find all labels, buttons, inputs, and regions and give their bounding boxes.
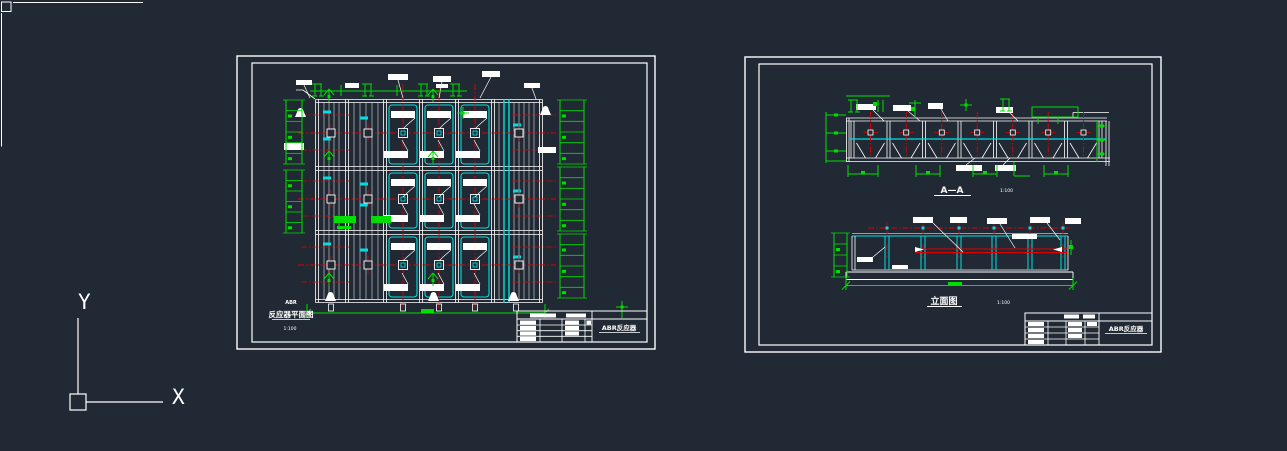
cad-line: [873, 247, 885, 257]
cad-rect: [2, 2, 12, 12]
plan-caption-title: 反应器平面图: [269, 309, 314, 319]
cad-label-block: [965, 104, 968, 107]
cad-label-block: [834, 150, 838, 153]
cad-label-block: [834, 114, 838, 117]
cad-label-block: [520, 321, 536, 325]
cad-label-block: [913, 217, 933, 223]
cad-rect: [1032, 107, 1078, 117]
cad-label-block: [462, 112, 465, 115]
cad-label-block: [1030, 217, 1050, 223]
cad-label-block: [328, 95, 331, 98]
cad-label-block: [911, 107, 915, 111]
cad-label-block: [565, 332, 579, 336]
cad-label-block: [995, 165, 1016, 171]
cad-label-block: [427, 243, 451, 250]
cad-rect: [327, 195, 335, 203]
ucs-x-axis-label: X: [172, 385, 185, 409]
crosshair-cursor: [2, 2, 144, 147]
cad-label-block: [928, 103, 943, 109]
leader-arrow: [1053, 247, 1062, 252]
cad-label-block: [323, 243, 331, 246]
cad-label-block: [1065, 218, 1081, 224]
cad-label-block: [834, 132, 838, 135]
cad-label-block: [345, 83, 359, 88]
cad-polyline: [403, 186, 415, 197]
cad-label-block: [433, 76, 451, 82]
cad-rect: [868, 130, 873, 135]
sheet-right-sections-drawing[interactable]: A—A 1:100 立面图 1:100 ABR反应器: [745, 57, 1161, 352]
cad-line: [1053, 143, 1062, 158]
cad-line: [433, 273, 438, 279]
cad-rect: [975, 130, 980, 135]
cad-polyline: [475, 186, 487, 197]
cad-line: [532, 88, 536, 99]
cad-line: [324, 89, 329, 95]
cad-label-block: [562, 270, 566, 273]
cad-label-block: [288, 115, 292, 118]
cad-label-block: [562, 115, 566, 118]
ucs-y-axis-label: Y: [78, 290, 91, 314]
cad-polyline: [475, 118, 487, 129]
cad-line: [329, 151, 334, 157]
elevation-view-caption: 立面图 1:100: [927, 295, 1010, 307]
cad-line: [428, 89, 433, 95]
cad-label-block: [857, 257, 873, 262]
cad-label-block: [323, 177, 331, 180]
cad-rect: [1081, 130, 1086, 135]
plan-caption-abr: ABR: [285, 300, 297, 306]
cad-line: [398, 80, 403, 98]
cad-label-block: [524, 83, 540, 88]
cad-line: [1088, 143, 1097, 158]
cad-label-block: [950, 217, 967, 223]
cad-label-block: [538, 147, 556, 153]
cad-label-block: [1068, 328, 1082, 332]
cad-label-block: [384, 151, 408, 158]
cad-label-block: [983, 171, 987, 174]
cad-label-block: [565, 321, 579, 325]
cad-rect: [435, 261, 444, 270]
cad-label-block: [562, 224, 566, 227]
cad-label-block: [566, 314, 586, 318]
cad-model-space[interactable]: Y X ABR 反应器平面图 1:100 ABR反应器 A—A: [0, 0, 1287, 451]
cad-label-block: [384, 284, 408, 291]
cad-label-block: [288, 226, 292, 229]
cad-label-block: [420, 284, 444, 291]
cad-label-block: [427, 111, 451, 118]
ucs-icon: Y X: [70, 290, 185, 410]
cad-rect: [399, 261, 408, 270]
cad-rect: [471, 129, 480, 138]
cad-label-block: [420, 215, 444, 222]
cad-rect: [471, 261, 480, 270]
elevation-caption-scale: 1:100: [997, 300, 1010, 306]
cad-label-block: [520, 337, 536, 341]
cad-line: [999, 143, 1008, 158]
cad-rect: [515, 261, 523, 269]
sheet-left-plan-drawing[interactable]: ABR 反应器平面图 1:100 ABR反应器: [237, 56, 655, 349]
cad-label-block: [565, 326, 579, 330]
cad-label-block: [520, 332, 536, 336]
cad-label-block: [391, 179, 415, 186]
cad-label-block: [391, 111, 415, 118]
cad-line: [1010, 113, 1018, 121]
cad-line: [908, 111, 920, 121]
cad-label-block: [328, 279, 331, 282]
cad-label-block: [323, 111, 331, 114]
cad-rect: [939, 130, 944, 135]
cad-rect: [745, 57, 1161, 352]
vent-symbol: [295, 108, 306, 117]
sheet-left-title-block: ABR反应器: [517, 311, 647, 342]
cad-label-block: [1100, 125, 1104, 128]
sheet-right-border-frame: [745, 57, 1161, 352]
cad-line: [947, 143, 956, 158]
cad-line: [928, 143, 937, 158]
cad-label-block: [530, 314, 556, 318]
cad-line: [329, 273, 334, 279]
cad-line: [324, 151, 329, 157]
cad-rect: [435, 129, 444, 138]
cad-label-block: [463, 179, 487, 186]
cad-label-block: [996, 107, 1013, 113]
cad-label-block: [987, 218, 1007, 224]
cad-label-block: [360, 249, 368, 252]
cad-label-block: [562, 249, 566, 252]
cad-label-block: [562, 136, 566, 139]
cad-label-block: [371, 216, 391, 223]
cad-label-block: [562, 203, 566, 206]
cad-label-block: [587, 321, 592, 325]
cad-label-block: [958, 227, 961, 230]
cad-line: [480, 77, 491, 98]
cad-label-block: [1012, 234, 1037, 239]
cad-label-block: [463, 111, 487, 118]
cad-rect: [327, 129, 335, 137]
plan-caption-scale: 1:100: [284, 326, 297, 332]
cad-label-block: [432, 157, 435, 160]
cad-rect: [364, 261, 372, 269]
cad-label-block: [1028, 322, 1044, 326]
cad-label-block: [1083, 315, 1095, 319]
cad-label-block: [1087, 322, 1097, 326]
cad-rect: [1010, 130, 1015, 135]
cad-rect: [70, 394, 86, 410]
cad-label-block: [873, 102, 877, 106]
cad-label-block: [463, 243, 487, 250]
cad-line: [857, 143, 866, 158]
cad-polyline: [403, 118, 415, 129]
cad-label-block: [513, 256, 521, 259]
cad-label-block: [861, 171, 865, 174]
vent-symbol: [325, 292, 336, 301]
cad-label-block: [993, 227, 996, 230]
cad-label-block: [513, 124, 521, 127]
cad-label-block: [432, 279, 435, 282]
cad-label-block: [337, 226, 351, 229]
cad-label-block: [1069, 245, 1073, 249]
cad-label-block: [956, 165, 982, 171]
cad-label-block: [836, 270, 840, 273]
cad-label-block: [562, 182, 566, 185]
cad-label-block: [1054, 171, 1058, 174]
cad-rect: [515, 129, 523, 137]
cad-label-block: [328, 157, 331, 160]
cad-label-block: [1100, 139, 1104, 142]
cad-label-block: [421, 309, 434, 313]
cad-line: [428, 273, 433, 279]
section-a-a-linework[interactable]: [826, 96, 1110, 177]
elevation-caption-title: 立面图: [930, 295, 957, 307]
cad-rect: [399, 195, 408, 204]
cad-rect: [514, 304, 519, 311]
cad-label-block: [360, 204, 368, 207]
cad-polyline: [403, 250, 415, 261]
cad-label-block: [288, 136, 292, 139]
cad-label-block: [1029, 227, 1032, 230]
cad-label-block: [836, 248, 840, 251]
cad-label-block: [288, 184, 292, 187]
cad-line: [1047, 223, 1060, 240]
cad-label-block: [513, 190, 521, 193]
cad-line: [964, 143, 973, 158]
cad-label-block: [922, 227, 925, 230]
cad-label-block: [334, 216, 356, 223]
cad-line: [329, 89, 334, 95]
cad-label-block: [1028, 328, 1044, 332]
cad-label-block: [482, 71, 500, 77]
cad-rect: [471, 195, 480, 204]
cad-label-block: [456, 284, 480, 291]
cad-rect: [364, 129, 372, 137]
cad-line: [982, 143, 991, 158]
cad-line: [1035, 143, 1044, 158]
cad-line: [1018, 143, 1027, 158]
cad-rect: [515, 195, 523, 203]
cad-line: [893, 143, 902, 158]
cad-line: [324, 273, 329, 279]
cad-polyline: [439, 250, 451, 261]
cad-label-block: [1068, 334, 1082, 338]
cad-label-block: [456, 151, 480, 158]
cad-label-block: [288, 205, 292, 208]
section-caption-title: A—A: [941, 186, 964, 196]
cad-label-block: [284, 143, 304, 150]
cad-label-block: [892, 265, 908, 269]
cad-line: [911, 143, 920, 158]
sheet-right-title-block: ABR反应器: [1025, 313, 1152, 345]
cad-label-block: [893, 105, 911, 111]
cad-label-block: [360, 183, 368, 186]
cad-label-block: [1068, 322, 1082, 326]
cad-label-block: [391, 243, 415, 250]
cad-label-block: [1028, 334, 1044, 338]
cad-label-block: [948, 282, 962, 286]
cad-label-block: [432, 95, 435, 98]
cad-rect: [1046, 130, 1051, 135]
cad-label-block: [388, 74, 408, 80]
cad-polyline: [439, 186, 451, 197]
plan-view-linework[interactable]: [284, 71, 556, 311]
section-a-a-caption: A—A 1:100: [934, 186, 1013, 196]
cad-label-block: [562, 157, 566, 160]
cad-label-block: [436, 84, 448, 88]
cad-line: [433, 89, 438, 95]
cad-polyline: [439, 118, 451, 129]
section-caption-scale: 1:100: [1000, 188, 1013, 194]
cad-rect: [399, 129, 408, 138]
cad-label-block: [520, 326, 536, 330]
cad-label-block: [1100, 153, 1104, 156]
cad-rect: [364, 195, 372, 203]
vent-symbol: [540, 106, 551, 115]
cad-label-block: [296, 80, 312, 85]
title-block-drawing-title: ABR反应器: [1109, 324, 1144, 333]
cad-label-block: [1064, 315, 1079, 319]
cad-label-block: [1062, 227, 1065, 230]
elevation-view-linework[interactable]: [831, 217, 1081, 290]
cad-label-block: [456, 215, 480, 222]
cad-label-block: [886, 227, 889, 230]
title-block-drawing-title: ABR反应器: [602, 323, 637, 332]
cad-label-block: [926, 171, 930, 174]
cad-rect: [435, 195, 444, 204]
cad-label-block: [288, 157, 292, 160]
cad-line: [1070, 143, 1079, 158]
cad-rect: [904, 130, 909, 135]
cad-label-block: [1028, 340, 1044, 344]
cad-rect: [327, 261, 335, 269]
cad-rect: [329, 304, 334, 311]
cad-line: [876, 143, 885, 158]
cad-label-block: [427, 179, 451, 186]
cad-label-block: [323, 138, 331, 141]
cad-label-block: [360, 117, 368, 120]
cad-label-block: [562, 291, 566, 294]
cad-polyline: [475, 250, 487, 261]
